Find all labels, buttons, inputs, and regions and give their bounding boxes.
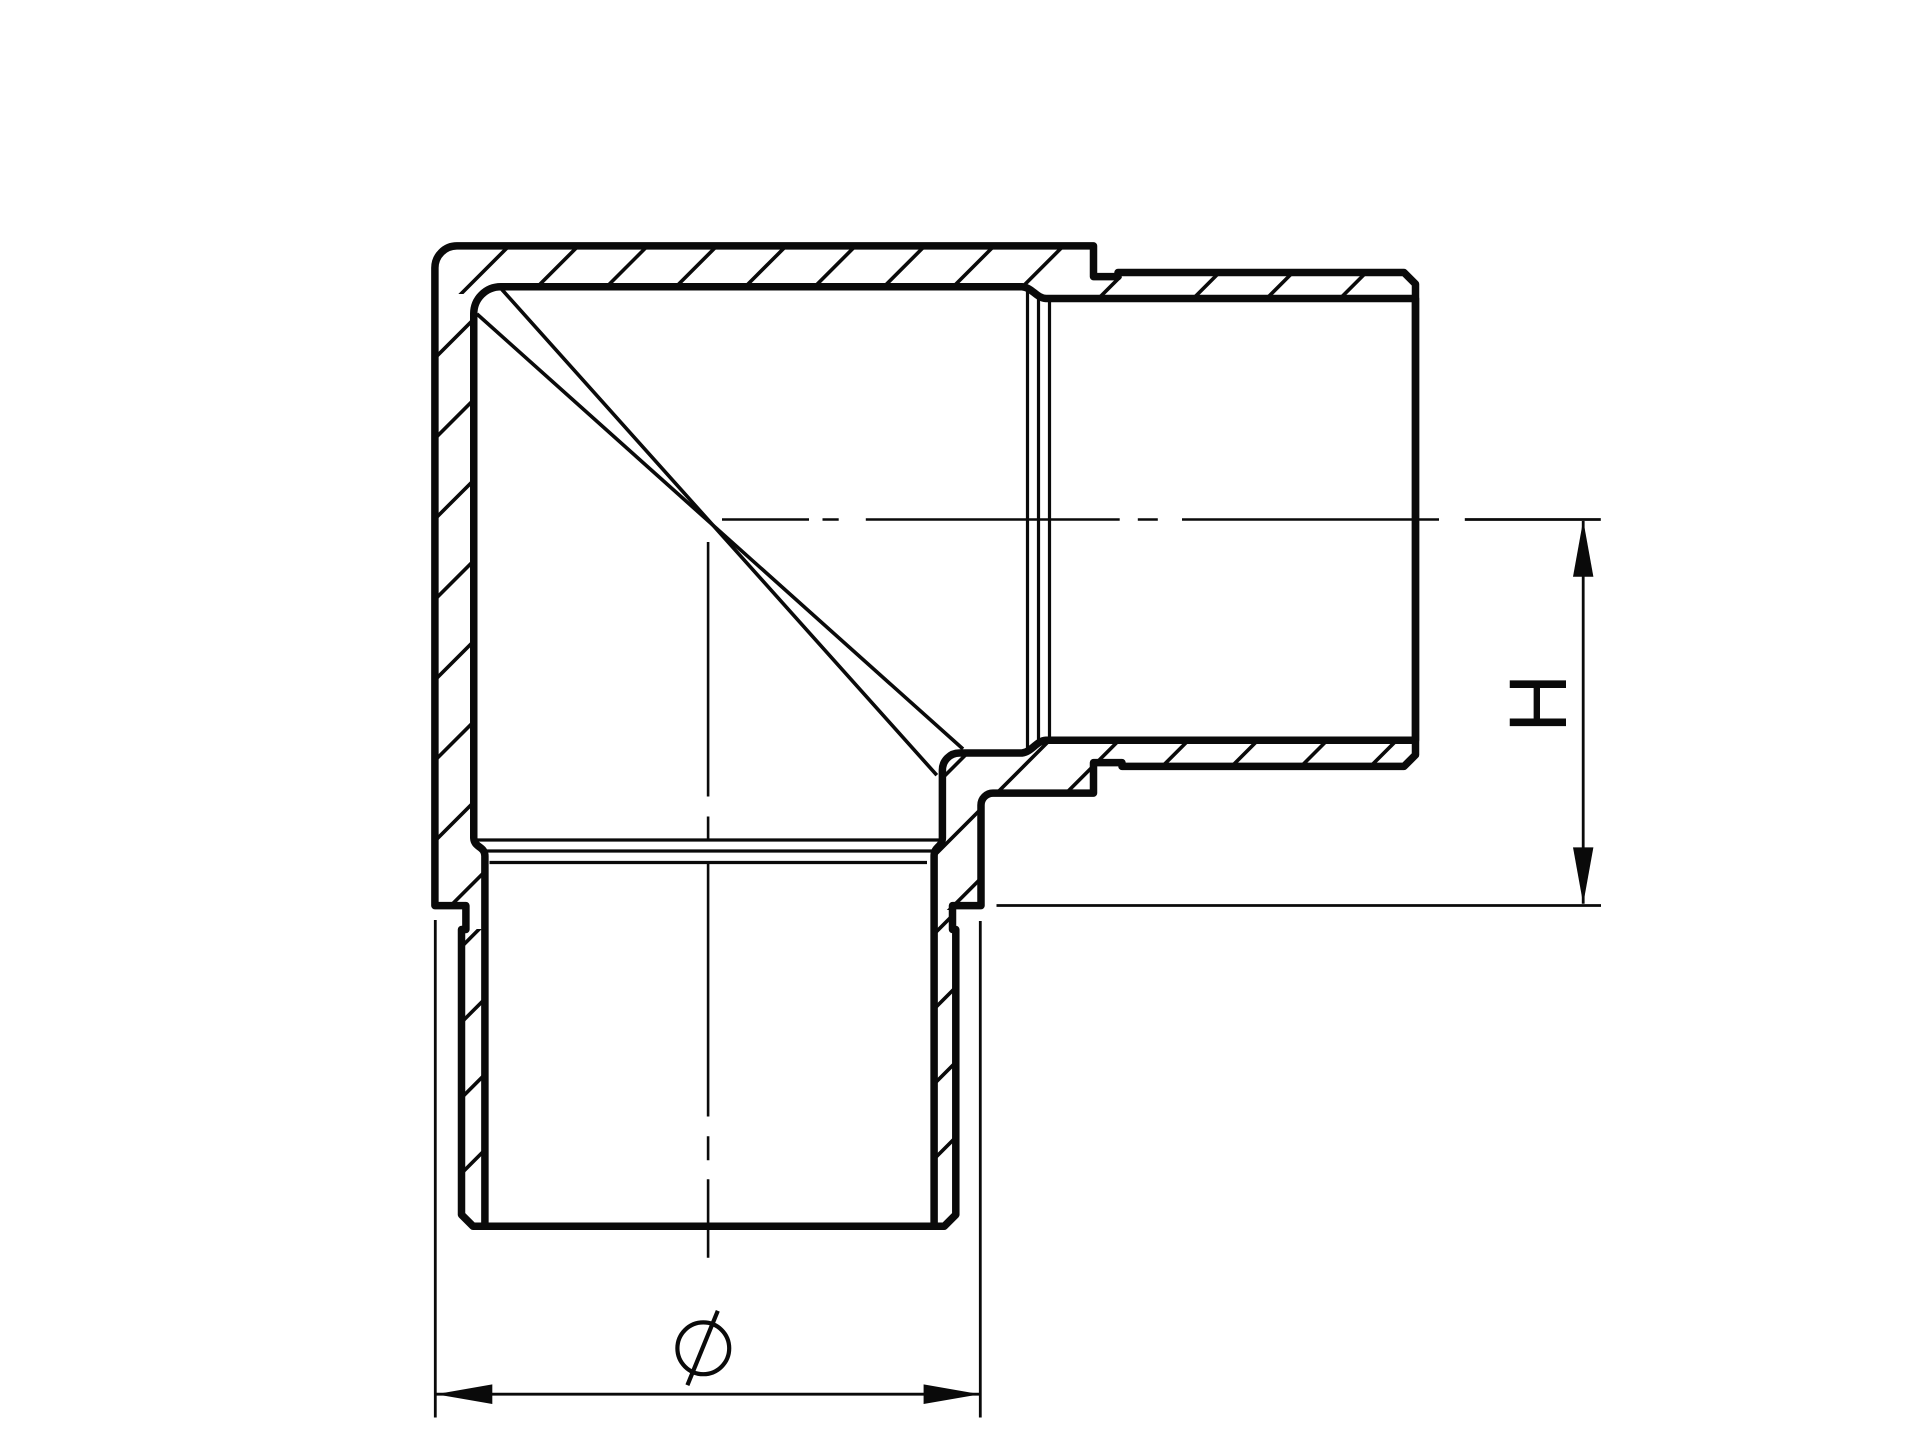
svg-text:H: H <box>1493 674 1584 733</box>
